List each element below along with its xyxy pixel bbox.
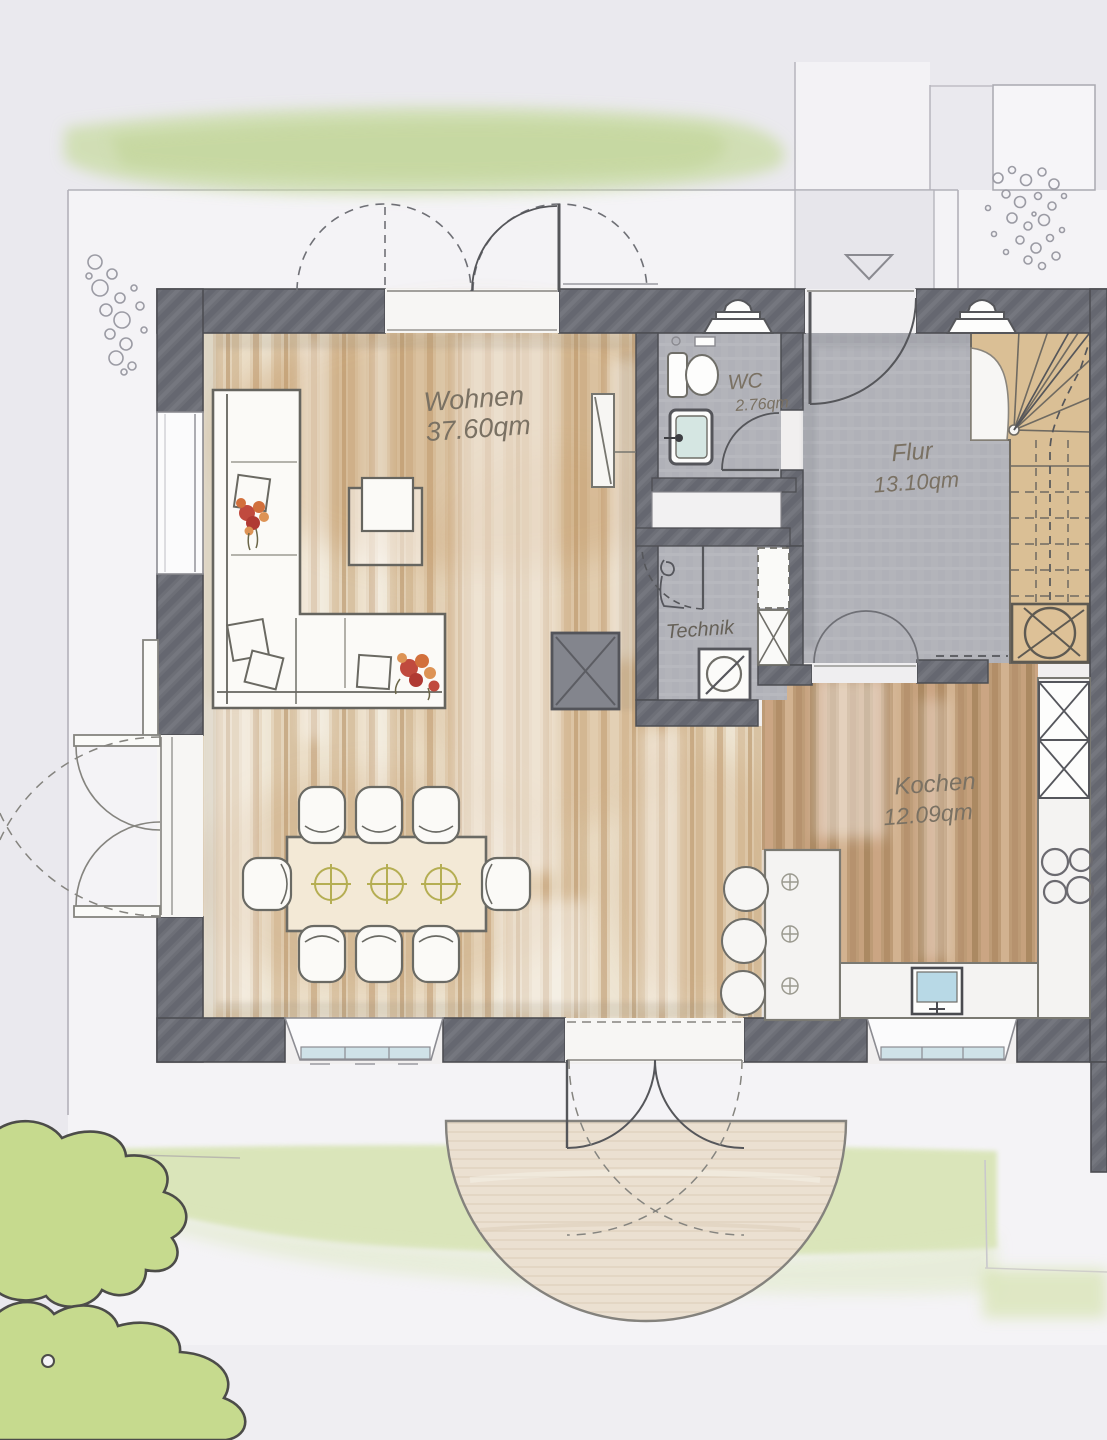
svg-text:Flur: Flur <box>891 437 935 467</box>
svg-text:WC: WC <box>727 369 764 394</box>
svg-text:Kochen: Kochen <box>893 768 976 801</box>
